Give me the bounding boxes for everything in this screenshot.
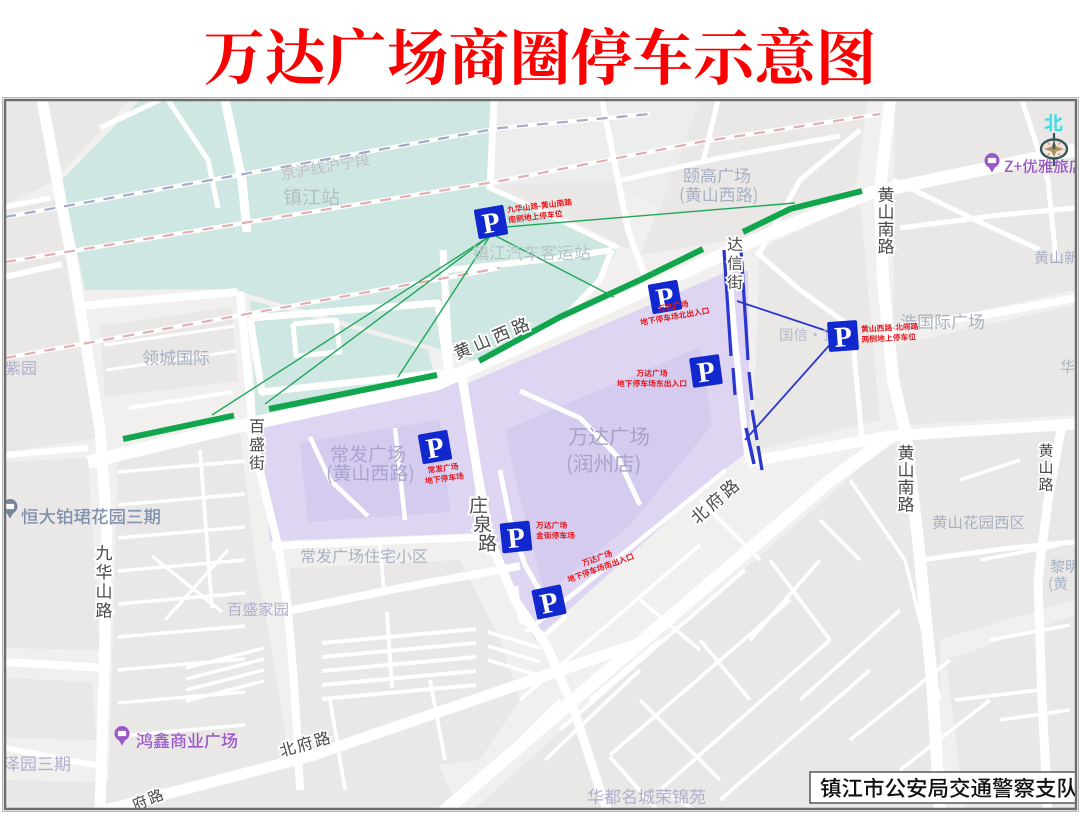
svg-text:P: P	[506, 522, 527, 556]
svg-text:P: P	[833, 321, 853, 354]
